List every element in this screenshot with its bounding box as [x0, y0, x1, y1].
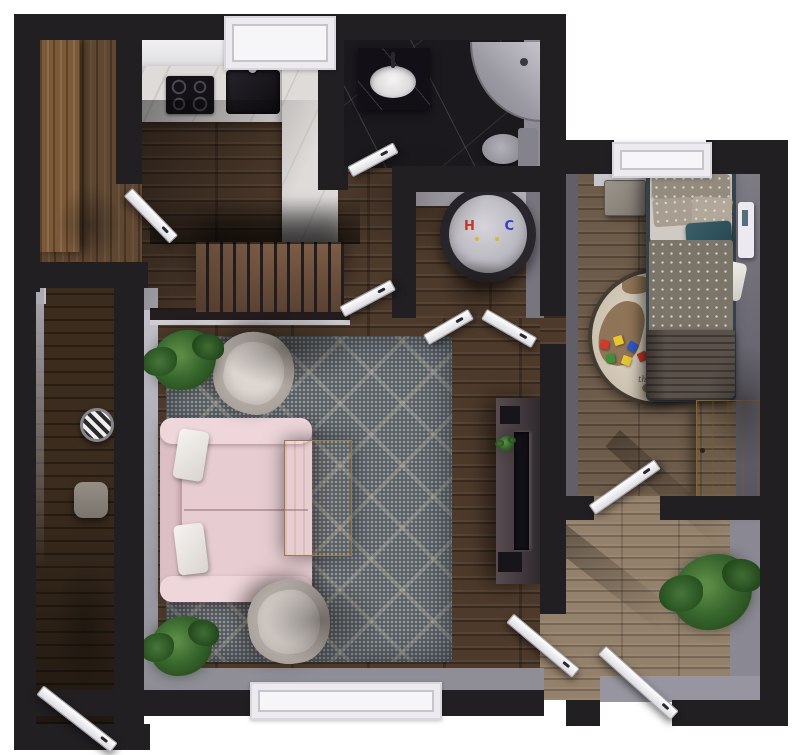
toy-blocks-item — [621, 355, 633, 367]
staircase-item — [317, 242, 330, 312]
wall-bath-bottom-right — [396, 166, 544, 192]
water-heater: H C — [440, 186, 536, 282]
wall-bedroom-top-left — [566, 140, 614, 174]
balcony-pouf — [80, 408, 114, 442]
bedroom-bench — [604, 180, 646, 216]
bed-duvet — [649, 240, 733, 332]
wall-balcony-outer — [14, 280, 36, 750]
floor-plan: H C the World — [0, 0, 802, 755]
heater-cold-label: C — [504, 219, 514, 234]
bedroom-window — [612, 142, 712, 178]
wall-right-outer — [760, 140, 788, 726]
staircase-item — [331, 242, 344, 312]
wall-closet-right — [116, 14, 142, 184]
staircase-item — [290, 242, 303, 312]
staircase-item — [304, 242, 317, 312]
staircase-item — [263, 242, 276, 312]
wardrobe-knob — [700, 448, 705, 453]
wall-corridor-divider-right — [660, 496, 762, 520]
toilet-tank — [518, 128, 538, 170]
kitchen-window — [224, 16, 336, 70]
toy-blocks-item — [626, 340, 638, 352]
toy-blocks-item — [613, 335, 624, 346]
heater-valve-dot — [495, 237, 499, 241]
wall-left-upper — [14, 14, 40, 292]
bathroom-sink — [370, 66, 416, 98]
wall-corridor-bottom-left — [566, 700, 600, 726]
wall-center-upper — [540, 14, 566, 316]
sofa-pillow-2 — [173, 522, 209, 575]
tv-screen — [514, 432, 529, 550]
wall-corridor-bottom-right — [672, 700, 772, 726]
console-speaker-bottom — [498, 552, 522, 572]
wall-balcony-divider — [114, 288, 144, 724]
staircase — [196, 242, 344, 312]
coffee-table — [284, 440, 352, 556]
staircase-item — [277, 242, 290, 312]
wall-bath-bottom-left — [318, 166, 348, 190]
stairs-wall-baseboard — [150, 320, 350, 325]
kitchen-cooktop — [166, 76, 214, 114]
living-room-window — [250, 682, 442, 720]
bedroom-left-wall-face — [566, 174, 578, 496]
staircase-item — [250, 242, 263, 312]
wall-utility-left — [392, 166, 416, 318]
toy-blocks — [598, 336, 650, 372]
closet-wardrobe-panel — [40, 40, 80, 252]
bathroom-faucet — [391, 52, 395, 68]
toy-blocks-item — [599, 339, 610, 350]
shower-drain — [520, 58, 528, 66]
bed-blanket — [647, 330, 735, 400]
toy-blocks-item — [605, 353, 615, 363]
staircase-item — [223, 242, 236, 312]
balcony-stool — [74, 482, 108, 518]
heater-hot-label: H — [464, 219, 475, 234]
corridor-wardrobe — [696, 400, 762, 506]
wall-center-mid — [540, 344, 566, 614]
staircase-item — [236, 242, 249, 312]
bedroom-wall-shelf-slot — [742, 210, 748, 226]
kitchen-sink — [226, 70, 280, 114]
balcony-rail-face — [36, 288, 44, 568]
staircase-item — [196, 242, 209, 312]
heater-valve-dot — [475, 237, 479, 241]
wall-bedroom-top-right — [706, 140, 766, 174]
console-speaker-top — [500, 406, 520, 424]
staircase-item — [209, 242, 222, 312]
corridor-bottom-wall-face — [600, 676, 760, 702]
